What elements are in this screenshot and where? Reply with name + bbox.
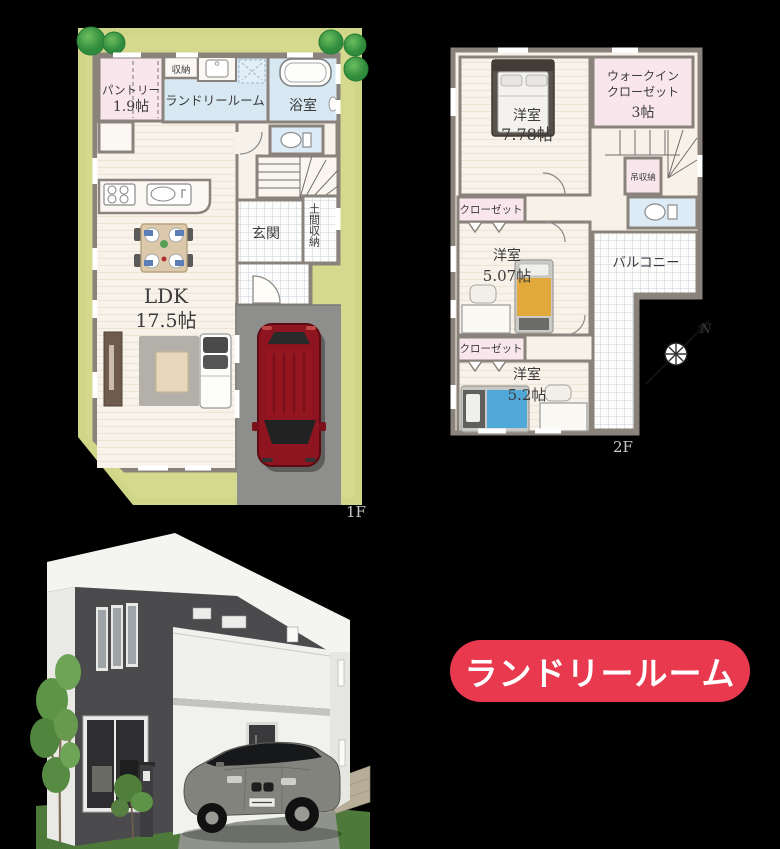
stairs-1f xyxy=(257,156,338,198)
car-red-topview xyxy=(252,324,326,472)
facade-slit-windows xyxy=(96,603,138,671)
dining-table-set xyxy=(134,224,193,272)
label-bedroom3-size: 5.2帖 xyxy=(508,386,547,404)
floor-plan-2f: 洋室 7.78帖 ウォークイン クローゼット 3帖 吊収納 クローゼット 洋室 … xyxy=(440,40,725,465)
floor-plan-1f: パントリー 1.9帖 収納 ランドリールーム 浴室 玄関 土間収納 LDK 17… xyxy=(59,25,371,525)
label-ldk: LDK xyxy=(144,284,189,308)
label-bath: 浴室 xyxy=(289,97,317,114)
house-render xyxy=(30,525,375,849)
label-balcony: バルコニー xyxy=(612,255,679,271)
label-laundry: ランドリールーム xyxy=(165,93,265,108)
recess-window-2 xyxy=(222,616,246,628)
label-pantry-size: 1.9帖 xyxy=(113,99,149,115)
label-bedroom1-size: 7.78帖 xyxy=(501,125,553,144)
toilet-icon-2f xyxy=(645,204,665,220)
toilet-tank xyxy=(303,133,311,147)
compass-icon: N xyxy=(646,320,712,384)
recess-window-1 xyxy=(193,608,211,619)
label-wic-1: ウォークイン xyxy=(607,69,679,83)
sink-icon xyxy=(147,184,191,205)
label-closet2: クローゼット xyxy=(460,343,523,355)
balcony-door xyxy=(287,627,298,642)
toilet-tank-2f xyxy=(668,205,677,219)
label-wic-size: 3帖 xyxy=(632,105,655,121)
label-storage: 収納 xyxy=(171,64,190,76)
sofa-cushion-1 xyxy=(203,337,228,353)
compass-n-label: N xyxy=(699,322,712,337)
label-bedroom2-size: 5.07帖 xyxy=(483,267,531,285)
label-bedroom3: 洋室 xyxy=(513,366,541,383)
label-entrance: 玄関 xyxy=(252,225,280,242)
washbasin-icon xyxy=(206,60,228,77)
floor-label-1f: 1F xyxy=(346,503,366,521)
label-hanging-storage: 吊収納 xyxy=(630,172,656,183)
door-gap-hall xyxy=(234,132,240,154)
shower-area xyxy=(239,60,265,83)
laundry-room-badge-label: ランドリールーム xyxy=(464,647,735,695)
label-doma: 土間収納 xyxy=(308,203,321,248)
label-pantry: パントリー xyxy=(102,83,160,97)
label-bedroom1: 洋室 xyxy=(513,107,541,124)
label-ldk-size: 17.5帖 xyxy=(135,310,196,332)
sofa-cushion-2 xyxy=(203,355,228,369)
label-wic-2: クローゼット xyxy=(607,85,679,99)
right-wall-window-2 xyxy=(339,740,345,766)
tv-board-slot xyxy=(109,345,114,390)
label-closet1: クローゼット xyxy=(460,204,523,216)
right-wall-window-1 xyxy=(338,660,344,686)
laundry-room-badge: ランドリールーム xyxy=(450,640,750,702)
floor-label-2f: 2F xyxy=(613,438,633,456)
ldk-nook xyxy=(99,122,133,152)
label-bedroom2: 洋室 xyxy=(493,247,521,264)
toilet-icon xyxy=(281,133,301,148)
living-table xyxy=(156,352,188,392)
